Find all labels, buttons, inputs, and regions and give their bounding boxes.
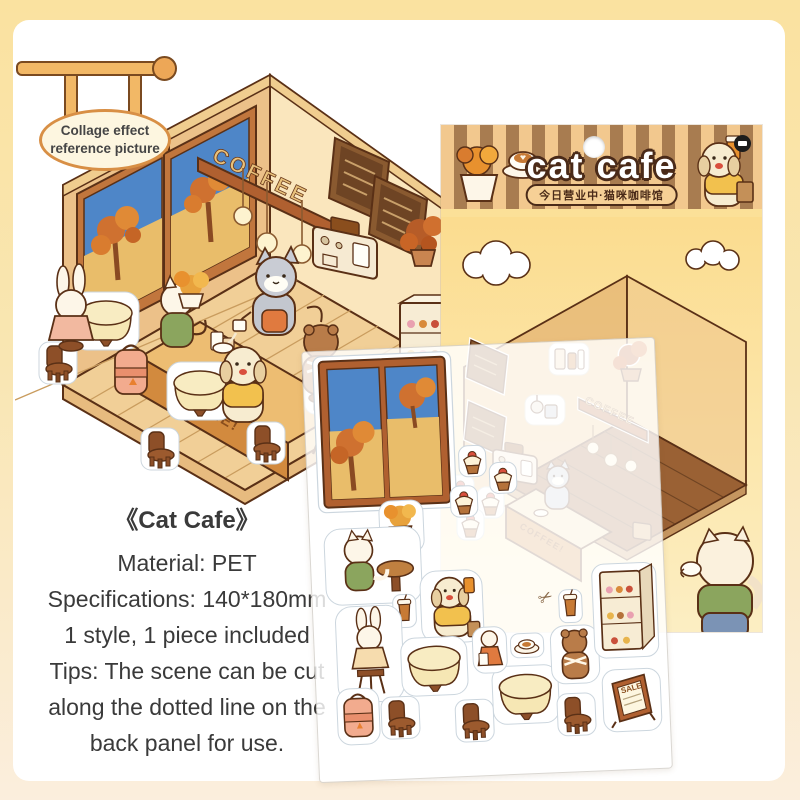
scissors-icon: ✂ (535, 586, 557, 610)
product-title: 《Cat Cafe》 (22, 500, 352, 535)
cloud (686, 241, 739, 270)
package-title: cat cafe (441, 145, 762, 187)
sticker-table (491, 664, 559, 725)
sticker-display-case (591, 562, 659, 659)
sticker-chair (557, 693, 597, 737)
sticker-sale-board: SALE (602, 668, 663, 732)
spec-line: along the dotted line on the (22, 689, 352, 725)
cafe-chair (141, 428, 179, 470)
reference-sign: Collage effect reference picture (0, 0, 200, 180)
cafe-chair (247, 422, 285, 464)
package-subtitle: 今日营业中·猫咪咖啡馆 (525, 184, 678, 206)
sticker-cupcake (450, 485, 478, 517)
sticker-suitcase (336, 688, 380, 746)
spec-line: Specifications: 140*180mm (22, 581, 352, 617)
spec-line: Tips: The scene can be cut (22, 653, 352, 689)
spec-line: Material: PET (22, 545, 352, 581)
spec-line: 1 style, 1 piece included (22, 617, 352, 653)
backpanel-white-cat (681, 527, 759, 632)
suitcase (115, 346, 147, 395)
sign-knob (152, 56, 177, 81)
sign-line-1: Collage effect (61, 122, 150, 140)
yellow-dog-guest (220, 347, 266, 422)
spec-line: back panel for use. (22, 725, 352, 761)
sticker-table (400, 636, 468, 697)
sticker-chair (455, 699, 495, 743)
sticker-waitress (472, 626, 508, 673)
sign-line-2: reference picture (50, 140, 160, 158)
sign-plate: Collage effect reference picture (39, 109, 171, 171)
product-description: 《Cat Cafe》 Material: PET Specifications:… (22, 500, 352, 761)
sign-bar (16, 61, 168, 76)
sticker-cupcake (489, 462, 517, 494)
sticker-bear (550, 624, 600, 684)
cloud (463, 241, 530, 285)
sticker-chair (381, 696, 421, 740)
product-page: { "sign": { "line1": "Collage effect", "… (0, 0, 800, 800)
sticker-window (312, 351, 456, 513)
sticker-sheet: SALE ✂ (301, 337, 673, 783)
sticker-iced-coffee (558, 589, 582, 623)
sticker-cat-table (324, 526, 423, 606)
sticker-cup-saucer (510, 633, 544, 658)
sticker-cupcake (458, 445, 486, 477)
